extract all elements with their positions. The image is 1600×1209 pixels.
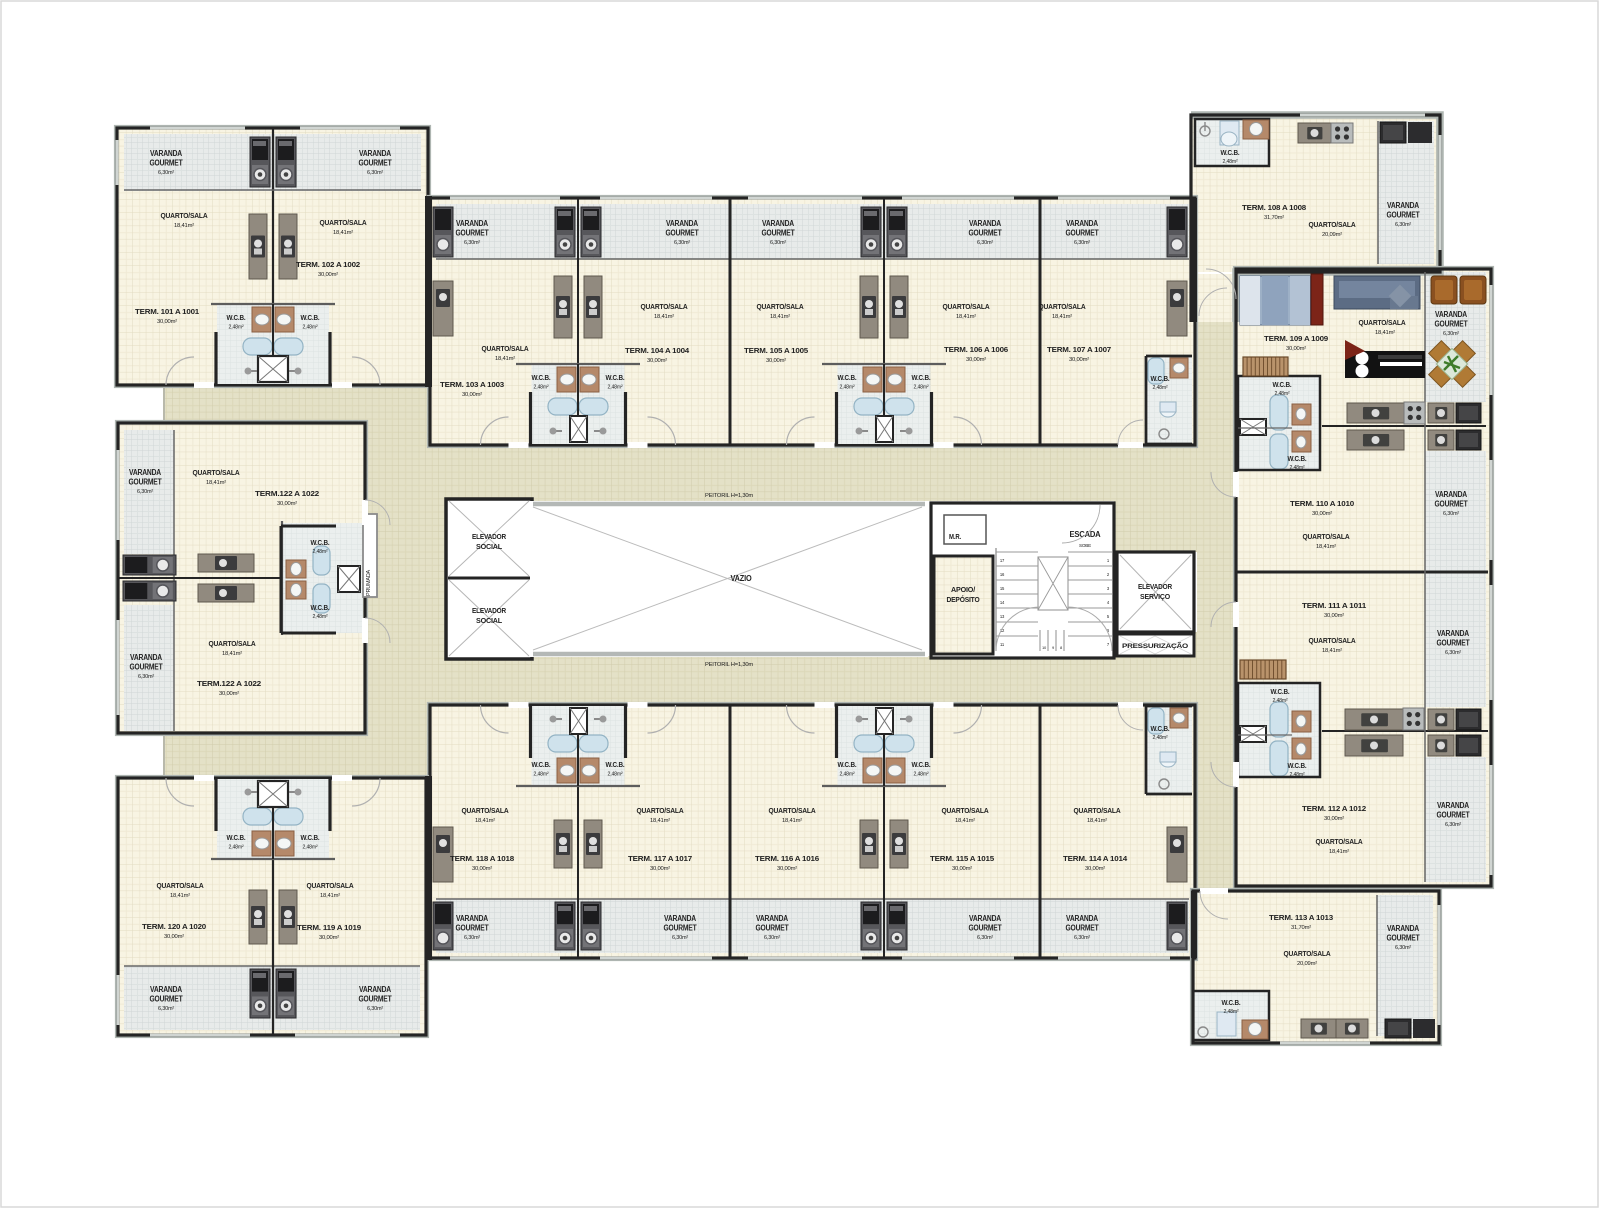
svg-text:TERM. 115 A 1015: TERM. 115 A 1015 [930,854,994,863]
svg-text:GOURMET: GOURMET [664,924,697,933]
svg-text:GOURMET: GOURMET [969,229,1002,238]
svg-text:VARANDA: VARANDA [359,985,391,994]
svg-text:GOURMET: GOURMET [130,663,163,672]
svg-text:18,41m²: 18,41m² [333,230,353,236]
svg-text:2,48m²: 2,48m² [608,772,623,778]
svg-text:18,41m²: 18,41m² [1375,330,1395,336]
svg-text:QUARTO/SALA: QUARTO/SALA [462,806,510,815]
svg-text:VARANDA: VARANDA [150,985,182,994]
svg-text:6,30m²: 6,30m² [1395,945,1411,951]
svg-text:TERM. 105 A 1005: TERM. 105 A 1005 [744,346,808,355]
svg-text:GOURMET: GOURMET [1435,500,1468,509]
svg-text:SOCIAL: SOCIAL [476,616,503,625]
svg-text:DEPÓSITO: DEPÓSITO [947,595,980,604]
svg-text:QUARTO/SALA: QUARTO/SALA [637,806,685,815]
svg-text:18,41m²: 18,41m² [1316,544,1336,550]
svg-text:2,48m²: 2,48m² [1273,698,1288,704]
svg-text:VARANDA: VARANDA [756,914,788,923]
svg-text:2,48m²: 2,48m² [840,772,855,778]
svg-text:2,48m²: 2,48m² [914,772,929,778]
svg-text:GOURMET: GOURMET [150,995,183,1004]
svg-text:30,00m²: 30,00m² [1324,816,1344,822]
svg-text:GOURMET: GOURMET [1387,934,1420,943]
svg-text:QUARTO/SALA: QUARTO/SALA [757,302,805,311]
svg-text:18,41m²: 18,41m² [650,818,670,824]
svg-text:SERVIÇO: SERVIÇO [1140,592,1170,601]
svg-text:QUARTO/SALA: QUARTO/SALA [1359,318,1407,327]
svg-text:QUARTO/SALA: QUARTO/SALA [943,302,991,311]
svg-text:W.C.B.: W.C.B. [838,375,857,382]
svg-text:2,48m²: 2,48m² [1290,465,1305,471]
svg-text:TERM. 114 A 1014: TERM. 114 A 1014 [1063,854,1128,863]
svg-text:GOURMET: GOURMET [1066,229,1099,238]
svg-text:GOURMET: GOURMET [1435,320,1468,329]
svg-text:30,00m²: 30,00m² [1324,613,1344,619]
svg-text:QUARTO/SALA: QUARTO/SALA [1284,949,1332,958]
svg-text:18,41m²: 18,41m² [174,223,194,229]
svg-text:18,41m²: 18,41m² [475,818,495,824]
svg-text:6,30m²: 6,30m² [137,489,153,495]
svg-text:W.C.B.: W.C.B. [838,762,857,769]
svg-text:QUARTO/SALA: QUARTO/SALA [942,806,990,815]
svg-text:TERM. 107 A 1007: TERM. 107 A 1007 [1047,345,1111,354]
svg-text:W.C.B.: W.C.B. [227,315,246,322]
svg-text:30,00m²: 30,00m² [952,866,972,872]
svg-text:TERM. 113 A 1013: TERM. 113 A 1013 [1269,913,1333,922]
svg-text:30,00m²: 30,00m² [777,866,797,872]
svg-text:6,30m²: 6,30m² [138,674,154,680]
svg-text:6,30m²: 6,30m² [1074,240,1090,246]
svg-text:VARANDA: VARANDA [1437,801,1469,810]
svg-text:6,30m²: 6,30m² [1395,222,1411,228]
svg-text:GOURMET: GOURMET [1437,811,1470,820]
svg-text:W.C.B.: W.C.B. [1151,376,1170,383]
svg-text:ELEVADOR: ELEVADOR [472,606,507,615]
svg-text:GOURMET: GOURMET [456,924,489,933]
svg-text:6,30m²: 6,30m² [672,935,688,941]
svg-text:PRUMADA: PRUMADA [366,569,372,596]
svg-text:20,09m²: 20,09m² [1297,961,1317,967]
svg-text:W.C.B.: W.C.B. [606,375,625,382]
svg-text:TERM.122 A 1022: TERM.122 A 1022 [255,489,319,498]
svg-text:W.C.B.: W.C.B. [311,540,330,547]
svg-text:2,48m²: 2,48m² [1223,159,1238,165]
svg-text:SOCIAL: SOCIAL [476,542,503,551]
svg-text:ESCADA: ESCADA [1070,530,1101,539]
svg-text:18,41m²: 18,41m² [770,314,790,320]
svg-text:TERM. 119 A 1019: TERM. 119 A 1019 [297,923,361,932]
svg-text:GOURMET: GOURMET [359,159,392,168]
svg-text:6,30m²: 6,30m² [367,1006,383,1012]
svg-text:18,41m²: 18,41m² [1329,849,1349,855]
svg-text:20,09m²: 20,09m² [1322,232,1342,238]
svg-text:TERM. 106 A 1006: TERM. 106 A 1006 [944,345,1008,354]
svg-text:30,00m²: 30,00m² [1312,511,1332,517]
svg-text:2,48m²: 2,48m² [313,549,328,555]
svg-text:GOURMET: GOURMET [456,229,489,238]
svg-text:2,48m²: 2,48m² [534,385,549,391]
svg-text:QUARTO/SALA: QUARTO/SALA [769,806,817,815]
svg-text:VARANDA: VARANDA [969,219,1001,228]
svg-text:W.C.B.: W.C.B. [912,375,931,382]
svg-text:31,70m²: 31,70m² [1264,215,1284,221]
svg-text:QUARTO/SALA: QUARTO/SALA [1309,636,1357,645]
svg-text:W.C.B.: W.C.B. [301,835,320,842]
svg-text:QUARTO/SALA: QUARTO/SALA [1303,532,1351,541]
svg-text:18,41m²: 18,41m² [170,893,190,899]
svg-text:APOIO/: APOIO/ [951,585,976,594]
svg-text:W.C.B.: W.C.B. [1288,456,1307,463]
svg-text:GOURMET: GOURMET [1066,924,1099,933]
svg-text:TERM. 117 A 1017: TERM. 117 A 1017 [628,854,692,863]
svg-text:QUARTO/SALA: QUARTO/SALA [307,881,355,890]
svg-text:6,30m²: 6,30m² [464,240,480,246]
svg-text:6,30m²: 6,30m² [1074,935,1090,941]
svg-text:6,30m²: 6,30m² [977,240,993,246]
svg-text:PEITORIL H=1,30m: PEITORIL H=1,30m [705,662,754,668]
svg-text:W.C.B.: W.C.B. [311,605,330,612]
svg-text:31,70m²: 31,70m² [1291,925,1311,931]
svg-text:VARANDA: VARANDA [456,219,488,228]
svg-text:QUARTO/SALA: QUARTO/SALA [320,218,368,227]
svg-text:TERM. 120 A 1020: TERM. 120 A 1020 [142,922,206,931]
svg-text:30,00m²: 30,00m² [1286,346,1306,352]
svg-text:TERM. 101 A 1001: TERM. 101 A 1001 [135,307,199,316]
svg-text:TERM. 102 A 1002: TERM. 102 A 1002 [296,260,360,269]
svg-text:GOURMET: GOURMET [1387,211,1420,220]
svg-text:18,41m²: 18,41m² [782,818,802,824]
svg-text:GOURMET: GOURMET [969,924,1002,933]
svg-text:QUARTO/SALA: QUARTO/SALA [482,344,530,353]
svg-text:TERM. 109 A 1009: TERM. 109 A 1009 [1264,334,1328,343]
svg-text:W.C.B.: W.C.B. [1271,689,1290,696]
svg-text:2,48m²: 2,48m² [1275,391,1290,397]
svg-text:QUARTO/SALA: QUARTO/SALA [209,639,257,648]
svg-text:2,48m²: 2,48m² [1224,1009,1239,1015]
svg-text:30,00m²: 30,00m² [164,934,184,940]
svg-text:VARANDA: VARANDA [130,653,162,662]
svg-text:30,00m²: 30,00m² [647,358,667,364]
svg-text:VARANDA: VARANDA [1387,924,1419,933]
svg-text:W.C.B.: W.C.B. [227,835,246,842]
svg-text:GOURMET: GOURMET [1437,639,1470,648]
svg-text:W.C.B.: W.C.B. [532,762,551,769]
svg-text:SOBE: SOBE [1079,543,1091,548]
svg-text:VARANDA: VARANDA [1387,201,1419,210]
svg-text:30,00m²: 30,00m² [219,691,239,697]
svg-text:6,30m²: 6,30m² [158,170,174,176]
svg-text:18,41m²: 18,41m² [1052,314,1072,320]
svg-text:QUARTO/SALA: QUARTO/SALA [1074,806,1122,815]
svg-text:GOURMET: GOURMET [756,924,789,933]
svg-text:6,30m²: 6,30m² [977,935,993,941]
svg-text:VARANDA: VARANDA [1066,219,1098,228]
svg-text:6,30m²: 6,30m² [764,935,780,941]
svg-text:PRESSURIZAÇÃO: PRESSURIZAÇÃO [1122,641,1188,650]
svg-text:ELEVADOR: ELEVADOR [472,532,507,541]
svg-text:6,30m²: 6,30m² [464,935,480,941]
svg-text:30,00m²: 30,00m² [318,272,338,278]
svg-text:W.C.B.: W.C.B. [1288,763,1307,770]
svg-text:TERM. 104 A 1004: TERM. 104 A 1004 [625,346,690,355]
svg-text:30,00m²: 30,00m² [277,501,297,507]
svg-text:18,41m²: 18,41m² [956,314,976,320]
svg-text:W.C.B.: W.C.B. [606,762,625,769]
svg-text:VARANDA: VARANDA [969,914,1001,923]
svg-text:QUARTO/SALA: QUARTO/SALA [641,302,689,311]
svg-text:30,00m²: 30,00m² [1085,866,1105,872]
svg-text:VARANDA: VARANDA [666,219,698,228]
svg-text:18,41m²: 18,41m² [955,818,975,824]
svg-text:18,41m²: 18,41m² [206,480,226,486]
svg-text:2,48m²: 2,48m² [608,385,623,391]
svg-text:2,48m²: 2,48m² [1290,772,1305,778]
svg-text:VAZIO: VAZIO [731,574,752,583]
svg-text:2,48m²: 2,48m² [229,845,244,851]
svg-text:30,00m²: 30,00m² [650,866,670,872]
svg-text:6,30m²: 6,30m² [770,240,786,246]
svg-text:M.R.: M.R. [949,532,961,541]
svg-text:2,48m²: 2,48m² [229,325,244,331]
svg-text:6,30m²: 6,30m² [158,1006,174,1012]
svg-text:2,48m²: 2,48m² [303,325,318,331]
svg-text:QUARTO/SALA: QUARTO/SALA [157,881,205,890]
svg-text:TERM. 118 A 1018: TERM. 118 A 1018 [450,854,514,863]
svg-text:2,48m²: 2,48m² [840,385,855,391]
svg-text:QUARTO/SALA: QUARTO/SALA [1039,302,1087,311]
svg-text:TERM. 116 A 1016: TERM. 116 A 1016 [755,854,819,863]
svg-text:18,41m²: 18,41m² [654,314,674,320]
svg-text:QUARTO/SALA: QUARTO/SALA [1309,220,1357,229]
svg-text:TERM. 111 A 1011: TERM. 111 A 1011 [1302,601,1366,610]
svg-text:GOURMET: GOURMET [666,229,699,238]
svg-text:2,48m²: 2,48m² [1153,385,1168,391]
svg-text:TERM.122 A 1022: TERM.122 A 1022 [197,679,261,688]
svg-text:2,48m²: 2,48m² [914,385,929,391]
svg-text:30,00m²: 30,00m² [966,357,986,363]
svg-text:2,48m²: 2,48m² [313,614,328,620]
svg-text:2,48m²: 2,48m² [303,845,318,851]
svg-text:30,00m²: 30,00m² [472,866,492,872]
svg-text:2,48m²: 2,48m² [1153,735,1168,741]
svg-text:6,30m²: 6,30m² [1445,822,1461,828]
svg-text:VARANDA: VARANDA [359,149,391,158]
svg-text:W.C.B.: W.C.B. [301,315,320,322]
svg-text:30,00m²: 30,00m² [766,358,786,364]
svg-text:GOURMET: GOURMET [762,229,795,238]
svg-text:VARANDA: VARANDA [1066,914,1098,923]
svg-text:VARANDA: VARANDA [762,219,794,228]
svg-text:W.C.B.: W.C.B. [1273,382,1292,389]
svg-text:GOURMET: GOURMET [150,159,183,168]
svg-text:30,00m²: 30,00m² [319,935,339,941]
svg-text:6,30m²: 6,30m² [674,240,690,246]
svg-text:VARANDA: VARANDA [1435,490,1467,499]
svg-text:ELEVADOR: ELEVADOR [1138,582,1173,591]
svg-text:VARANDA: VARANDA [1437,629,1469,638]
svg-text:TERM. 110 A 1010: TERM. 110 A 1010 [1290,499,1354,508]
svg-text:6,30m²: 6,30m² [367,170,383,176]
svg-text:PEITORIL H=1,30m: PEITORIL H=1,30m [705,493,754,499]
svg-text:VARANDA: VARANDA [129,468,161,477]
svg-text:GOURMET: GOURMET [129,478,162,487]
svg-text:18,41m²: 18,41m² [1322,648,1342,654]
svg-text:VARANDA: VARANDA [150,149,182,158]
svg-text:18,41m²: 18,41m² [1087,818,1107,824]
svg-text:6,30m²: 6,30m² [1443,511,1459,517]
svg-text:VARANDA: VARANDA [664,914,696,923]
svg-text:18,41m²: 18,41m² [495,356,515,362]
svg-text:6,30m²: 6,30m² [1443,331,1459,337]
svg-text:18,41m²: 18,41m² [320,893,340,899]
svg-text:W.C.B.: W.C.B. [532,375,551,382]
svg-text:30,00m²: 30,00m² [157,319,177,325]
svg-text:TERM. 108 A 1008: TERM. 108 A 1008 [1242,203,1306,212]
svg-text:VARANDA: VARANDA [456,914,488,923]
svg-text:QUARTO/SALA: QUARTO/SALA [193,468,241,477]
svg-text:TERM. 112 A 1012: TERM. 112 A 1012 [1302,804,1366,813]
svg-text:2,48m²: 2,48m² [534,772,549,778]
svg-text:30,00m²: 30,00m² [1069,357,1089,363]
svg-text:18,41m²: 18,41m² [222,651,242,657]
svg-text:6,30m²: 6,30m² [1445,650,1461,656]
svg-text:W.C.B.: W.C.B. [912,762,931,769]
svg-text:W.C.B.: W.C.B. [1222,1000,1241,1007]
svg-text:TERM. 103 A 1003: TERM. 103 A 1003 [440,380,504,389]
svg-text:QUARTO/SALA: QUARTO/SALA [161,211,209,220]
svg-text:W.C.B.: W.C.B. [1221,150,1240,157]
svg-text:VARANDA: VARANDA [1435,310,1467,319]
svg-text:GOURMET: GOURMET [359,995,392,1004]
svg-text:30,00m²: 30,00m² [462,392,482,398]
svg-text:W.C.B.: W.C.B. [1151,726,1170,733]
svg-text:QUARTO/SALA: QUARTO/SALA [1316,837,1364,846]
